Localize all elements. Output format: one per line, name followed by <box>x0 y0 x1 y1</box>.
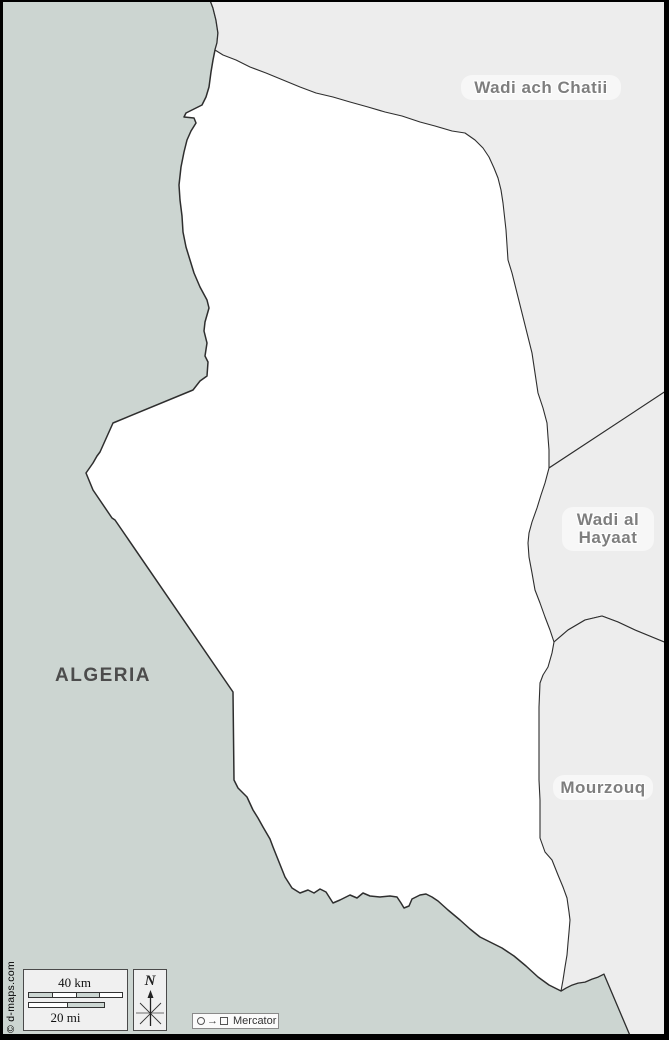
circle-icon <box>197 1017 205 1025</box>
scale-km-segment <box>52 993 75 997</box>
scale-mi-bar <box>28 1002 105 1008</box>
scale-km-bar <box>28 992 123 998</box>
projection-box: → Mercator <box>192 1013 279 1029</box>
compass-rose-icon <box>134 989 166 1029</box>
scale-km-segment <box>76 993 99 997</box>
wadi-ach-chatii-label-text: Wadi ach Chatii <box>474 78 607 98</box>
scale-mi-segment <box>29 1003 67 1007</box>
algeria-label: ALGERIA <box>55 665 151 687</box>
projection-label: Mercator <box>233 1015 276 1027</box>
wadi-ach-chatii-label: Wadi ach Chatii <box>461 75 621 100</box>
scale-km-label: 40 km <box>28 975 121 991</box>
square-icon <box>220 1017 228 1025</box>
mourzouq-label-text: Mourzouq <box>560 778 645 798</box>
wadi-al-hayaat-label-line2: Hayaat <box>579 529 638 547</box>
wadi-al-hayaat-label-line1: Wadi al <box>577 511 639 529</box>
scale-bar: 40 km 20 mi <box>23 969 128 1031</box>
wadi-al-hayaat-label: Wadi al Hayaat <box>562 507 654 551</box>
map-canvas: Wadi ach Chatii Wadi al Hayaat Mourzouq … <box>0 0 669 1040</box>
scale-mi-segment <box>67 1003 105 1007</box>
north-label: N <box>145 973 156 989</box>
dmaps-credit: © d-maps.com <box>5 961 17 1033</box>
mourzouq-label: Mourzouq <box>553 775 653 800</box>
scale-mi-label: 20 mi <box>28 1010 103 1026</box>
scale-km-segment <box>29 993 52 997</box>
arrow-right-icon: → <box>207 1017 218 1025</box>
compass-box: N <box>133 969 167 1031</box>
scale-km-segment <box>99 993 122 997</box>
